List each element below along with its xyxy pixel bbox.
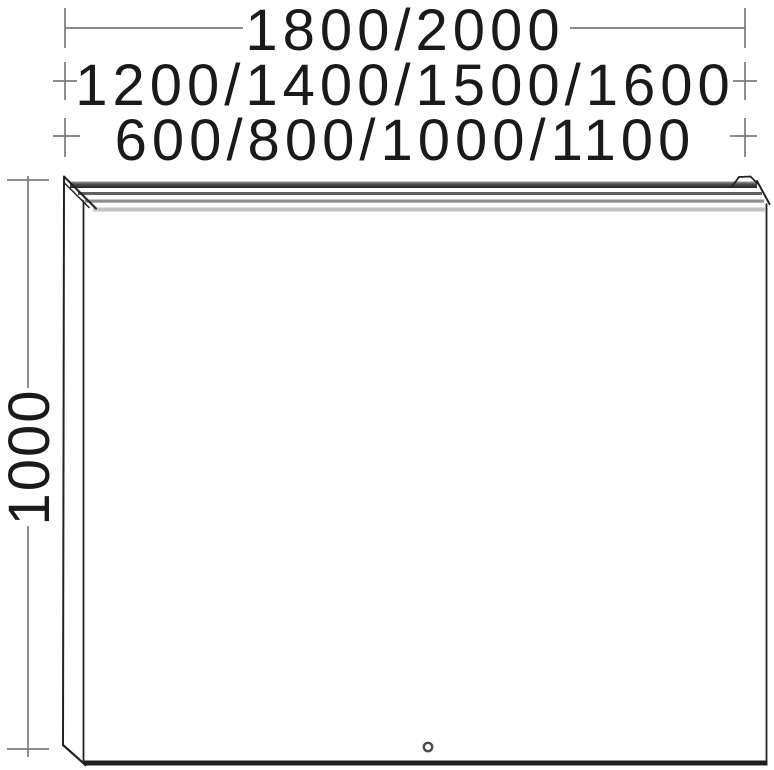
light-strip-line-mid bbox=[78, 192, 762, 195]
bottom-edge bbox=[84, 761, 768, 766]
dimension-label-small-widths: 600/800/1000/1100 bbox=[115, 108, 696, 173]
left-outer-edge bbox=[63, 177, 64, 745]
bottom-left-bevel bbox=[63, 745, 86, 765]
light-strip-top-band bbox=[70, 182, 757, 189]
dimension-drawing: 1800/2000 1200/1400/1500/1600 600/800/10… bbox=[0, 0, 774, 770]
mirror-body bbox=[63, 177, 770, 766]
light-strip-line-soft bbox=[85, 200, 764, 203]
dimension-label-height: 1000 bbox=[0, 388, 62, 525]
light-strip-diffuser bbox=[93, 208, 765, 212]
sensor-switch-icon bbox=[424, 743, 432, 751]
mirror-drawing-canvas: 1800/2000 1200/1400/1500/1600 600/800/10… bbox=[0, 0, 774, 770]
